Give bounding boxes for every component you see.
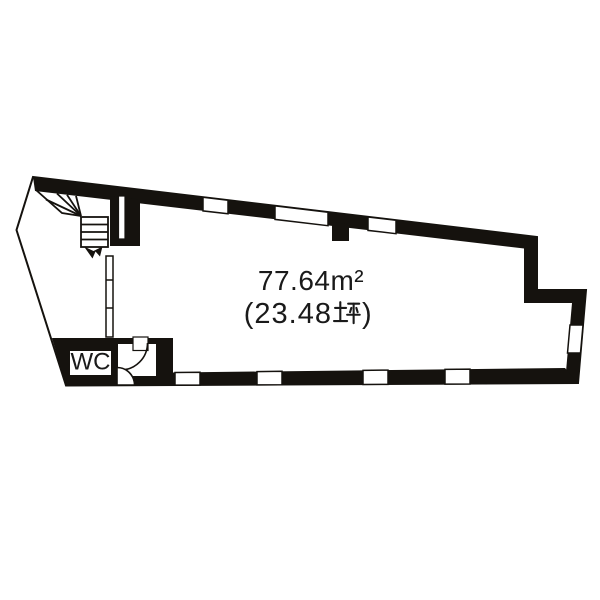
wall-pillar-stub <box>332 222 349 241</box>
window-opening-icon <box>368 217 396 234</box>
window-opening-icon <box>568 325 584 353</box>
window-opening-icon <box>363 370 388 384</box>
area-sqm-label: 77.64m² <box>258 265 364 296</box>
window-opening-icon <box>175 372 200 385</box>
right-step-wall <box>524 290 586 303</box>
window-opening-icon <box>203 197 228 214</box>
wc-door-opening <box>133 337 148 351</box>
stairwell-door-slot <box>119 196 126 239</box>
window-opening-icon <box>257 371 282 385</box>
floor-plan: WC 77.64m² (23.48 ) <box>0 0 600 600</box>
area-tsubo-prefix: (23.48 <box>244 298 332 330</box>
partition-wall <box>106 256 113 337</box>
window-opening-icon <box>445 369 470 384</box>
wc-label: WC <box>71 349 111 376</box>
area-tsubo-suffix: ) <box>362 298 372 330</box>
